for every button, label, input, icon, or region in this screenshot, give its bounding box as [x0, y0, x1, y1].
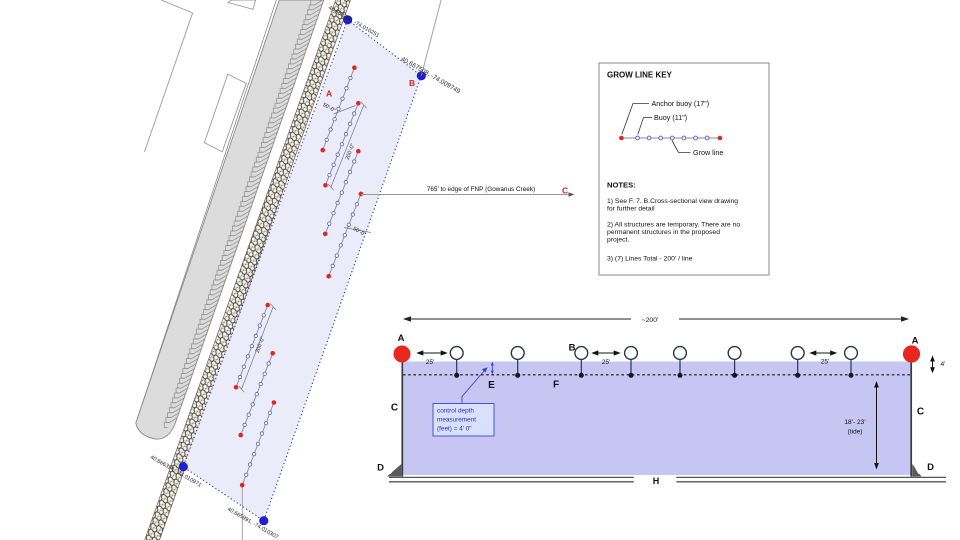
svg-text:GROW LINE KEY: GROW LINE KEY — [607, 71, 673, 80]
svg-text:A: A — [398, 333, 405, 344]
svg-text:C: C — [391, 403, 398, 414]
svg-text:Anchor buoy (17"): Anchor buoy (17") — [652, 99, 710, 108]
svg-text:C: C — [917, 407, 924, 418]
svg-text:for further detail: for further detail — [607, 206, 655, 213]
svg-text:765' to edge of FNP (Gowanus C: 765' to edge of FNP (Gowanus Creek) — [427, 186, 535, 193]
svg-text:~200': ~200' — [642, 317, 659, 324]
svg-text:25': 25' — [602, 359, 611, 366]
svg-text:25': 25' — [426, 359, 435, 366]
svg-text:(tide): (tide) — [847, 429, 862, 436]
svg-text:NOTES:: NOTES: — [607, 181, 636, 190]
svg-text:4': 4' — [941, 361, 946, 368]
svg-text:A: A — [326, 89, 332, 99]
svg-text:H: H — [653, 476, 660, 486]
svg-text:E: E — [488, 380, 495, 391]
svg-text:permanent structures in the pr: permanent structures in the proposed — [607, 229, 720, 236]
svg-text:measurement: measurement — [437, 417, 476, 424]
svg-text:3) (7) Lines Total - 200' / li: 3) (7) Lines Total - 200' / line — [607, 256, 693, 263]
svg-text:1) See F. 7. B.Cross-sectional: 1) See F. 7. B.Cross-sectional view draw… — [607, 198, 738, 205]
svg-text:B: B — [409, 78, 415, 88]
svg-text:D: D — [377, 463, 384, 474]
svg-text:2) All structures are temporar: 2) All structures are temporary. There a… — [607, 222, 740, 229]
svg-text:C: C — [562, 186, 568, 196]
svg-text:control depth: control depth — [437, 408, 474, 415]
svg-text:F: F — [553, 380, 559, 391]
svg-text:(feet) = 4' 0": (feet) = 4' 0" — [437, 426, 472, 433]
svg-text:Buoy (11"): Buoy (11") — [654, 113, 687, 122]
svg-text:25': 25' — [821, 359, 830, 366]
svg-text:18'- 23': 18'- 23' — [844, 419, 865, 426]
svg-text:Grow line: Grow line — [693, 148, 723, 157]
svg-text:D: D — [927, 462, 934, 473]
svg-text:B: B — [569, 343, 576, 354]
svg-text:A: A — [912, 336, 919, 347]
svg-text:project.: project. — [607, 237, 629, 244]
